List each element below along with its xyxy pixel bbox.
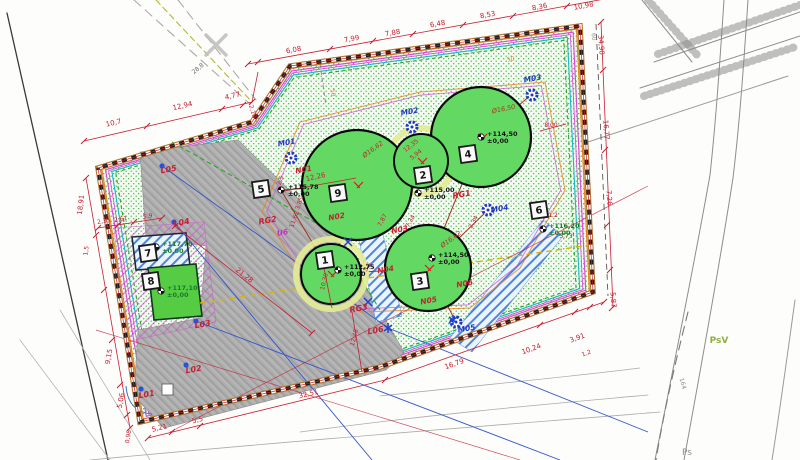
manhole-icon <box>527 90 537 100</box>
badge-1: 1 <box>316 251 334 269</box>
badge-4: 4 <box>459 145 477 163</box>
badge-2: 2 <box>414 166 432 184</box>
dim-label: 4,77 <box>224 90 241 101</box>
land-use-label: Ps <box>682 448 692 458</box>
dim-label: 0,98 <box>124 429 133 444</box>
elevation-label: ±0,00 <box>424 193 446 201</box>
dim-label: 10,24 <box>521 342 543 357</box>
dim-label: 8,53 <box>479 10 496 21</box>
small-marker-box <box>162 384 173 395</box>
survey-cross-icon <box>206 35 226 55</box>
elevation-label: ±0,00 <box>167 291 189 299</box>
dashed-road-edge <box>134 0 250 104</box>
parcel-number: 164 <box>678 377 688 390</box>
badge-3: 3 <box>411 272 429 290</box>
path-crossing <box>588 76 788 142</box>
badge-6: 6 <box>530 201 548 219</box>
dim-label: 2,18 <box>247 104 258 119</box>
drawing-canvas[interactable]: 6,08 7,99 7,88 6,48 8,53 8,36 10,98 10,7… <box>0 0 800 460</box>
elevation-label: ±0,00 <box>344 270 366 278</box>
land-use-label: PsV <box>710 336 729 346</box>
dim-label: 8,00 <box>544 122 558 129</box>
badge-5: 5 <box>252 180 270 198</box>
utility-dashed-line <box>156 0 252 102</box>
survey-mark-label: 28,8 <box>191 62 206 76</box>
parcel-line <box>20 340 110 460</box>
dim-label: 1,2 <box>581 349 593 359</box>
dim-label: 16,77 <box>601 120 610 141</box>
dim-label: 50 <box>506 55 515 63</box>
dim-label: 10,7 <box>105 117 122 128</box>
site-plan-drawing: 6,08 7,99 7,88 6,48 8,53 8,36 10,98 10,7… <box>0 0 800 460</box>
dim-label: 5,21 <box>151 422 168 434</box>
elevation-label: ±0,00 <box>549 229 571 237</box>
elevation-label: ±0,00 <box>438 258 460 266</box>
dim-label: 8,36 <box>531 2 548 13</box>
dim-label: 50 <box>328 88 336 97</box>
badge-8: 8 <box>142 272 160 290</box>
dim-label: 5,06 <box>116 392 127 409</box>
manhole-icon <box>407 122 417 132</box>
badge-7: 7 <box>139 244 157 262</box>
dim-label: 16,79 <box>444 357 466 371</box>
road-curve <box>772 300 795 460</box>
badge-9: 9 <box>329 184 347 202</box>
elevation-label: ±0,00 <box>487 137 509 145</box>
dim-label: 6,48 <box>429 19 446 30</box>
dim-label: 1,2 <box>548 212 558 219</box>
manhole-icon <box>286 153 296 163</box>
dim-label: 1,5 <box>82 245 90 256</box>
offset-dashed-line <box>596 24 608 296</box>
dim-label: 9,15 <box>104 348 115 365</box>
dim-label: 5,87 <box>608 292 617 308</box>
dim-label: 6,08 <box>285 45 302 56</box>
dim-label: 10,98 <box>573 0 594 11</box>
parcel-line <box>380 368 640 396</box>
road-number: 60 <box>590 33 598 42</box>
road-edge-line <box>7 13 108 460</box>
road-edge <box>655 0 724 460</box>
dim-label: 18,91 <box>76 194 86 215</box>
elevation-label: ±0,00 <box>288 190 310 198</box>
parcel-line <box>300 395 648 432</box>
dim-label: 3,91 <box>569 332 586 345</box>
dim-label: 7,99 <box>343 34 360 45</box>
dim-label: 12,94 <box>172 100 194 112</box>
elevation-label: ±0,00 <box>162 247 184 255</box>
dim-label: 7,26 <box>604 190 613 207</box>
